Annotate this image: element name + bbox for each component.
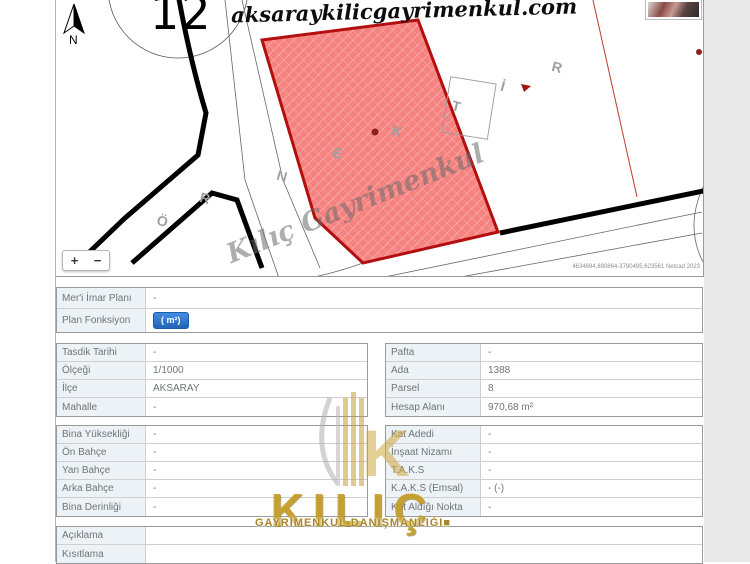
brand-square-glyph: ■ <box>443 517 451 529</box>
zoom-in-button[interactable]: + <box>71 253 79 268</box>
row-label: Pafta <box>386 344 481 361</box>
row-label: Mer'i İmar Planı <box>57 288 146 308</box>
plan-fonksiyon-m2-button[interactable]: ( m²) <box>153 312 189 329</box>
map-overview-thumbnail <box>646 0 701 19</box>
row-label: Kısıtlama <box>57 545 146 563</box>
plan-info-table: Mer'i İmar Planı-Plan Fonksiyon( m²) <box>56 287 703 333</box>
row-value: - <box>481 462 702 479</box>
row-label: Açıklama <box>57 527 146 544</box>
row-label: Mahalle <box>57 398 146 416</box>
table-row: Hesap Alanı970,68 m² <box>386 398 702 416</box>
parcel-query-page: 12 ÖRNEKTİR N 4634694,880864-3790495,623… <box>0 0 750 562</box>
row-value: ( m²) <box>146 309 702 332</box>
north-arrow-icon: N <box>56 0 92 46</box>
row-label: Ölçeği <box>57 362 146 379</box>
row-value: - <box>146 344 367 361</box>
table-row: Kısıtlama <box>57 545 702 563</box>
row-value: - <box>481 444 702 461</box>
road-line <box>500 190 703 233</box>
row-value: - <box>146 288 702 308</box>
parcel-info-table: Pafta-Ada1388Parsel8Hesap Alanı970,68 m² <box>385 343 703 417</box>
row-label: Bina Derinliği <box>57 498 146 516</box>
brand-subtitle-watermark: GAYRİMENKUL DANIŞMANLIĞI■ <box>238 517 468 529</box>
row-value <box>146 545 702 563</box>
parcel-boundary-line <box>593 0 637 197</box>
svg-text:K: K <box>362 416 410 490</box>
row-value: - <box>481 344 702 361</box>
row-value: 1388 <box>481 362 702 379</box>
table-row: Plan Fonksiyon( m²) <box>57 309 702 332</box>
row-value: - <box>481 498 702 516</box>
table-row: T.A.K.S- <box>386 462 702 480</box>
table-row: İnşaat Nizamı- <box>386 444 702 462</box>
row-label: Tasdik Tarihi <box>57 344 146 361</box>
row-value: 970,68 m² <box>481 398 702 416</box>
row-label: Ön Bahçe <box>57 444 146 461</box>
row-label: Arka Bahçe <box>57 480 146 497</box>
block-number-label: 12 <box>150 0 213 40</box>
boundary-dot <box>696 49 702 55</box>
page-right-gutter <box>704 0 750 562</box>
zoom-out-button[interactable]: − <box>94 253 102 268</box>
table-row: Kat Adedi- <box>386 426 702 444</box>
agency-logo-icon: K <box>300 388 415 496</box>
row-value: 1/1000 <box>146 362 367 379</box>
row-label: Ada <box>386 362 481 379</box>
row-value: - <box>481 426 702 443</box>
row-label: Yan Bahçe <box>57 462 146 479</box>
parcel-centroid-dot <box>372 129 379 136</box>
table-row: Parsel8 <box>386 380 702 398</box>
table-row: Mer'i İmar Planı- <box>57 288 702 309</box>
map-zoom-control: + − <box>62 250 110 271</box>
map-coordinates-text: 4634694,880864-3790495,623561 Netcad 202… <box>572 264 700 270</box>
table-row: Ölçeği1/1000 <box>57 362 367 380</box>
row-value: 8 <box>481 380 702 397</box>
cadastral-map[interactable]: 12 ÖRNEKTİR N 4634694,880864-3790495,623… <box>56 0 704 277</box>
map-linework <box>56 0 703 276</box>
north-label: N <box>69 33 78 46</box>
table-row: Ada1388 <box>386 362 702 380</box>
red-tick-mark <box>521 84 531 92</box>
table-row: Pafta- <box>386 344 702 362</box>
row-label: Bina Yüksekliği <box>57 426 146 443</box>
row-label: Plan Fonksiyon <box>57 309 146 332</box>
row-value: - (-) <box>481 480 702 497</box>
table-row: Tasdik Tarihi- <box>57 344 367 362</box>
row-label: İlçe <box>57 380 146 397</box>
